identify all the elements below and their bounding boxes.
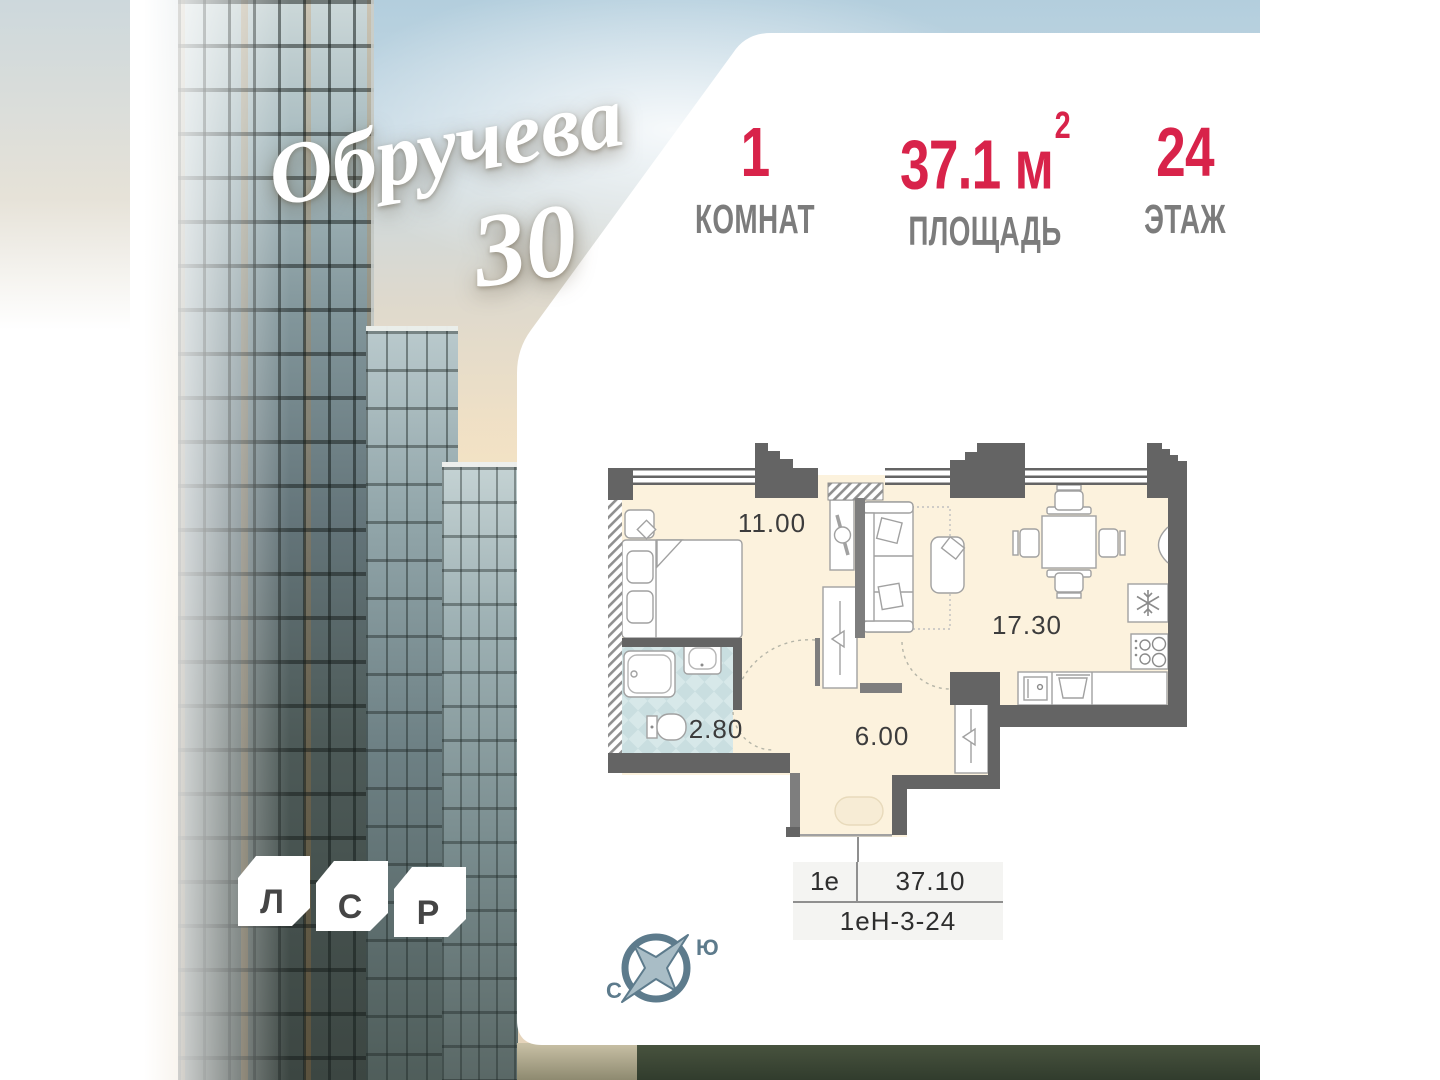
leader-line [857, 838, 859, 862]
stat-floor-value: 24 [1094, 116, 1276, 188]
layout-type-cell: 1е [793, 862, 858, 901]
bed-pillow [627, 591, 653, 623]
chair-back [1057, 485, 1081, 490]
total-area-cell: 37.10 [858, 862, 1003, 901]
outer-wall-hatch [608, 500, 622, 753]
compass-rose: Ю С [598, 922, 738, 1014]
logo-cube: С [316, 861, 388, 931]
stat-floor: 24 ЭТАЖ [1065, 116, 1305, 240]
stat-rooms-number: 1 [741, 113, 770, 191]
floor-plan: 11.00 17.30 2.80 6.00 [600, 435, 1200, 865]
facade-steps [755, 443, 793, 468]
developer-letter: Л [260, 883, 284, 921]
bed-pillow [627, 551, 653, 583]
stat-rooms: 1 КОМНАТ [635, 116, 875, 240]
low-building [517, 1043, 637, 1080]
sofa-pillow [877, 518, 902, 543]
chair-back [1013, 531, 1018, 555]
room-label-bathroom: 2.80 [689, 714, 744, 744]
logo-cube: Р [394, 867, 466, 937]
room-label-bedroom: 11.00 [738, 508, 806, 538]
tv-icon-circle [835, 527, 851, 543]
stat-area-value: 37.1 м2 [894, 116, 1076, 200]
stat-area-label: ПЛОЩАДЬ [903, 210, 1066, 252]
stat-floor-label: ЭТАЖ [1103, 198, 1266, 240]
unit-code-cell: 1еН-3-24 [793, 903, 1003, 940]
room-label-hallway: 6.00 [855, 721, 910, 751]
logo-cube: Л [238, 856, 310, 926]
toilet-bowl [657, 714, 686, 740]
spec-row-top: 1е 37.10 [793, 862, 1003, 903]
shaft-hatch [828, 483, 883, 500]
sofa-armrest [863, 621, 913, 632]
flyer-canvas: Обручева 30 1 КОМНАТ 37.1 м2 ПЛОЩАДЬ 24 … [0, 0, 1440, 1080]
unit-spec-table: 1е 37.10 1еН-3-24 [793, 862, 1003, 940]
sink-icon [1059, 678, 1087, 698]
entry-rug [835, 797, 883, 825]
dining-chair [1099, 529, 1118, 557]
chair-back [1120, 531, 1125, 555]
stat-area-number: 37.1 [900, 125, 1001, 203]
developer-letter: С [338, 888, 363, 926]
chair-back [1057, 593, 1081, 598]
dining-chair [1020, 529, 1039, 557]
dining-chair [1055, 573, 1083, 592]
room-label-living-kitchen: 17.30 [992, 610, 1062, 640]
dining-table [1042, 516, 1096, 568]
compass-north-label: С [606, 978, 622, 1003]
dining-chair [1055, 491, 1083, 510]
stat-area-unit: м [1015, 125, 1054, 203]
stat-rooms-label: КОМНАТ [673, 198, 836, 240]
sofa-armrest [863, 502, 913, 513]
stat-rooms-value: 1 [664, 116, 846, 188]
tower-setback [442, 462, 518, 1080]
developer-logo: Л С Р [228, 848, 478, 948]
developer-letter: Р [417, 894, 440, 932]
stat-floor-number: 24 [1156, 113, 1214, 191]
facade-steps [950, 443, 1025, 498]
threshold [800, 834, 892, 837]
sofa-pillow [878, 583, 903, 609]
facade-steps [1147, 443, 1187, 498]
compass-south-label: Ю [696, 935, 719, 960]
